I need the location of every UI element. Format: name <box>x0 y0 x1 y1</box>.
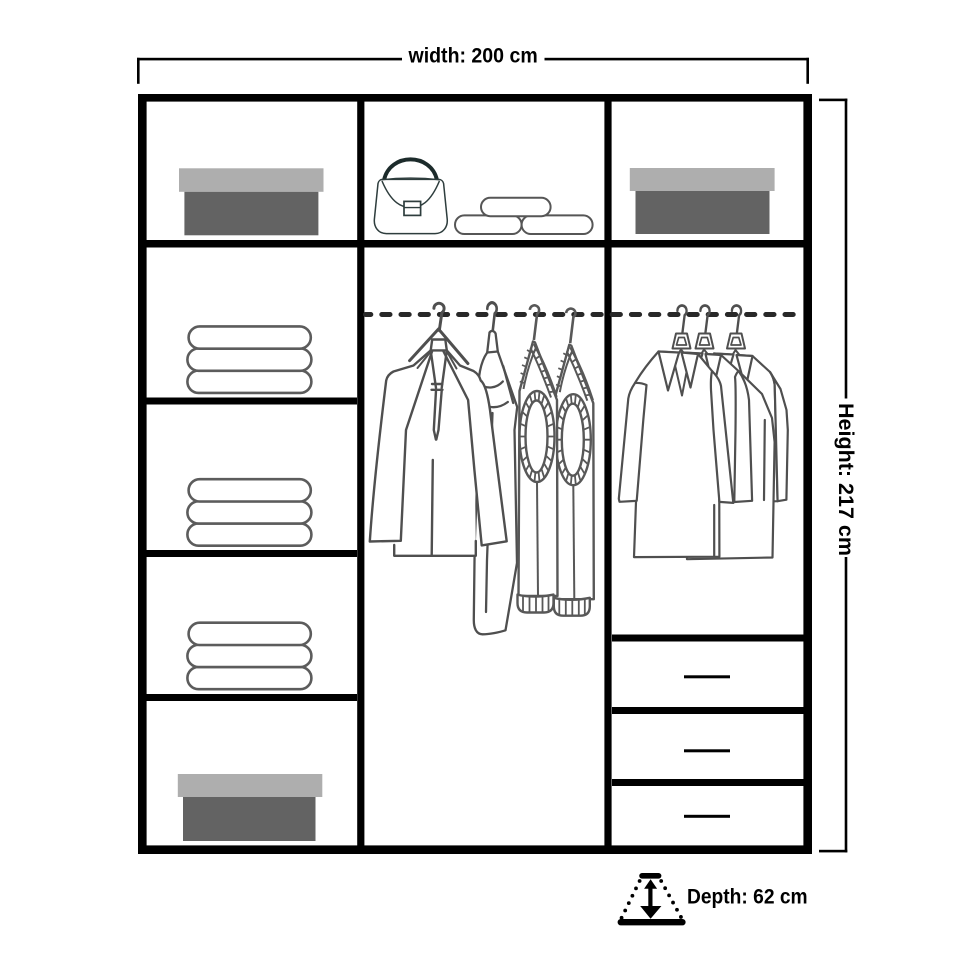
svg-text:Depth: 62 cm: Depth: 62 cm <box>687 884 808 908</box>
svg-text:width: 200 cm: width: 200 cm <box>408 44 538 68</box>
svg-text:Height: 217 cm: Height: 217 cm <box>834 403 858 556</box>
